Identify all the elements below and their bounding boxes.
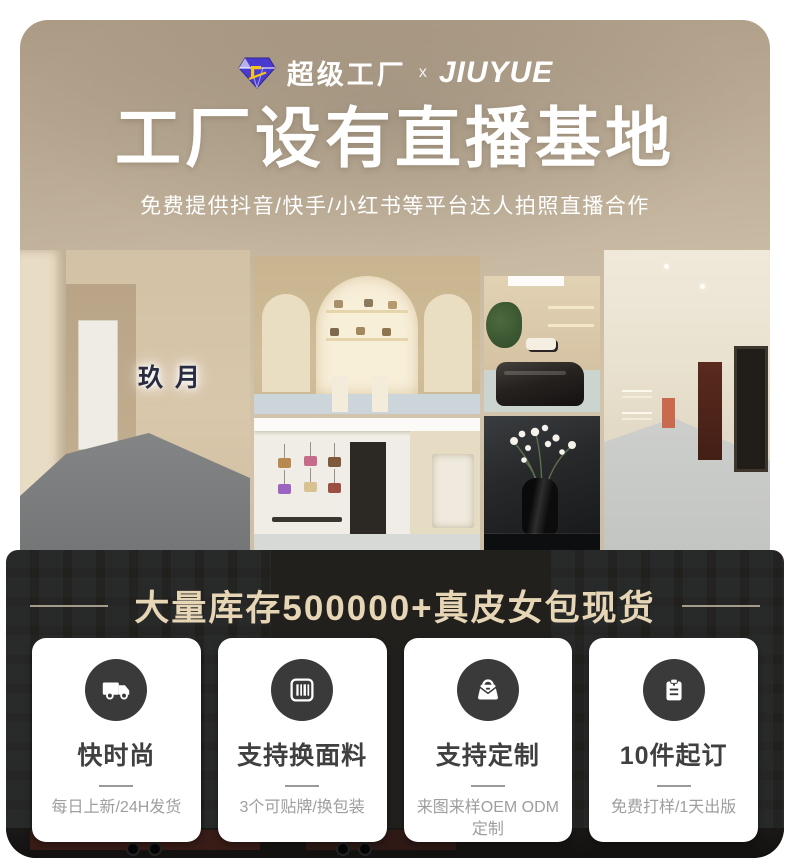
brand-separator: x bbox=[417, 64, 429, 82]
brand-logo-row: 超级工厂 x JIUYUE bbox=[20, 20, 770, 92]
card-title: 支持换面料 bbox=[218, 736, 387, 772]
benefit-card-min-order: 10件起订 免费打样/1天出版 bbox=[589, 638, 758, 842]
photo-lounge bbox=[484, 276, 600, 412]
hero-title: 工厂设有直播基地 bbox=[20, 102, 770, 175]
stock-text: 大量库存500000+真皮女包现货 bbox=[134, 580, 655, 631]
brand-name-right: JIUYUE bbox=[439, 56, 553, 90]
hallway-neon-sign: 玖月 bbox=[138, 358, 212, 394]
hero-subtitle: 免费提供抖音/快手/小红书等平台达人拍照直播合作 bbox=[20, 190, 770, 220]
diamond-logo-icon bbox=[237, 56, 277, 90]
photo-vase bbox=[484, 416, 600, 550]
benefit-card-fast-fashion: 快时尚 每日上新/24H发货 bbox=[32, 638, 201, 842]
card-desc: 免费打样/1天出版 bbox=[589, 797, 758, 819]
photo-bags-wall bbox=[254, 418, 480, 550]
truck-icon bbox=[85, 659, 147, 721]
stock-section: 大量库存500000+真皮女包现货 快时尚 每日上新/24H发货 bbox=[6, 550, 784, 858]
photo-collage: 玖月 bbox=[20, 250, 770, 550]
benefit-card-material-swap: 支持换面料 3个可贴牌/换包装 bbox=[218, 638, 387, 842]
handbag-icon bbox=[457, 659, 519, 721]
card-title: 支持定制 bbox=[404, 736, 573, 772]
stock-divider-left bbox=[30, 605, 108, 607]
card-title: 10件起订 bbox=[589, 736, 758, 772]
brand-name-left: 超级工厂 bbox=[287, 53, 407, 92]
promo-banner: 超级工厂 x JIUYUE 工厂设有直播基地 免费提供抖音/快手/小红书等平台达… bbox=[0, 0, 790, 868]
barcode-icon bbox=[271, 659, 333, 721]
photo-gallery-hall bbox=[604, 250, 770, 550]
hero-section: 超级工厂 x JIUYUE 工厂设有直播基地 免费提供抖音/快手/小红书等平台达… bbox=[20, 20, 770, 550]
card-divider bbox=[285, 785, 319, 787]
card-divider bbox=[471, 785, 505, 787]
clipboard-icon bbox=[643, 659, 705, 721]
card-desc: 每日上新/24H发货 bbox=[32, 797, 201, 819]
benefit-card-customization: 支持定制 来图来样OEM ODM定制 bbox=[404, 638, 573, 842]
stock-banner: 大量库存500000+真皮女包现货 bbox=[6, 550, 784, 631]
stock-divider-right bbox=[682, 605, 760, 607]
card-desc: 来图来样OEM ODM定制 bbox=[404, 797, 573, 842]
photo-hallway: 玖月 bbox=[20, 250, 250, 550]
benefit-cards: 快时尚 每日上新/24H发货 支持换面料 3个可贴牌/换包装 bbox=[32, 638, 758, 842]
card-divider bbox=[657, 785, 691, 787]
card-desc: 3个可贴牌/换包装 bbox=[218, 797, 387, 819]
card-title: 快时尚 bbox=[32, 736, 201, 772]
card-divider bbox=[99, 785, 133, 787]
photo-arches-showroom bbox=[254, 256, 480, 414]
